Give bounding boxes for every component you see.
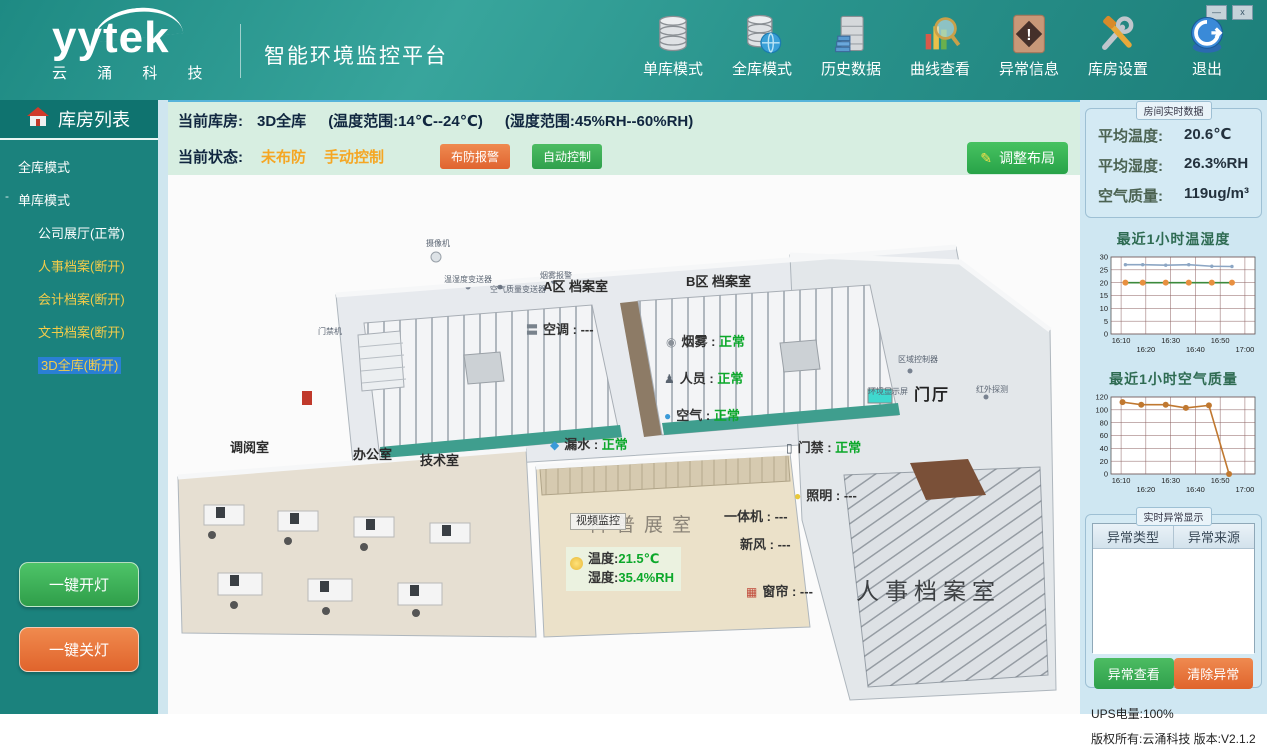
toolbar-all-mode[interactable]: 全库模式	[724, 12, 800, 79]
tree-item-3d-all[interactable]: 3D全库(断开)	[0, 348, 158, 381]
view-alerts-button[interactable]: 异常查看	[1094, 658, 1174, 689]
svg-text:!: !	[1026, 27, 1031, 44]
toolbar-label: 库房设置	[1080, 58, 1156, 79]
alert-type-column-header: 异常类型	[1093, 524, 1174, 548]
tech-room-label: 技术室	[420, 454, 459, 469]
curve-magnifier-icon	[902, 12, 978, 56]
statusbar-line2: 当前状态: 未布防 手动控制 布防报警 自动控制	[168, 138, 1080, 174]
svg-text:20: 20	[1099, 457, 1107, 466]
svg-text:16:40: 16:40	[1185, 485, 1204, 494]
svg-text:120: 120	[1095, 393, 1108, 402]
alerts-table-header: 异常类型 异常来源	[1093, 524, 1254, 549]
ac-sensor: 〓空调 : ---	[526, 323, 594, 338]
light-sensor: ●照明 : ---	[794, 489, 857, 504]
temp-humidity-chart-title: 最近1小时温湿度	[1085, 229, 1262, 249]
svg-text:15: 15	[1099, 291, 1107, 300]
zonecontroller-device-label: 区域控制器	[898, 355, 938, 364]
air-quality-chart-block: 最近1小时空气质量 02040608010012016:1016:2016:30…	[1085, 369, 1262, 498]
svg-text:16:30: 16:30	[1161, 336, 1180, 345]
video-monitor-chip[interactable]: 视频监控	[570, 513, 626, 530]
collapse-expander-icon[interactable]: -	[5, 189, 9, 203]
svg-text:17:00: 17:00	[1235, 485, 1254, 494]
toolbar-label: 历史数据	[813, 58, 889, 79]
tree-item-all-mode[interactable]: 全库模式	[0, 150, 158, 183]
infrared-device-label: 红外探测	[976, 385, 1008, 394]
avg-temp-row: 平均温度: 20.6℃	[1086, 125, 1261, 146]
svg-text:20: 20	[1099, 278, 1107, 287]
current-state-label: 当前状态:	[178, 146, 243, 167]
toolbar-alert-info[interactable]: ! 异常信息	[991, 12, 1067, 79]
area-a-label: A区 档案室	[543, 280, 608, 295]
air-quality-chart: 02040608010012016:1016:2016:3016:4016:50…	[1087, 392, 1261, 498]
tree-item-personnel-archive[interactable]: 人事档案(断开)	[0, 249, 158, 282]
scene-overlay: 温度:21.5℃ 湿度:35.4%RH A区 档案室B区 档案室门厅调阅室办公室…	[168, 175, 1080, 714]
svg-text:0: 0	[1103, 330, 1107, 339]
alerts-table-body[interactable]	[1093, 549, 1254, 654]
temphum-device-label: 温湿度变送器	[444, 275, 492, 284]
alerts-buttons: 异常查看 清除异常	[1092, 653, 1255, 689]
svg-text:16:40: 16:40	[1185, 345, 1204, 354]
all-lights-on-button[interactable]: 一键开灯	[19, 562, 139, 607]
toolbar-curve-view[interactable]: 曲线查看	[902, 12, 978, 79]
toolbar-label: 单库模式	[635, 58, 711, 79]
app-title: 智能环境监控平台	[264, 40, 448, 70]
envdisplay-device-label: 环境显示屏	[868, 387, 908, 396]
toolbar-label: 退出	[1169, 58, 1245, 79]
warning-diamond-icon: !	[991, 12, 1067, 56]
warehouse-tree: 全库模式 -单库模式 公司展厅(正常) 人事档案(断开) 会计档案(断开) 文书…	[0, 140, 158, 381]
temp-range-value: (温度范围:14℃--24℃)	[328, 110, 483, 131]
air-sensor: ●空气 : 正常	[664, 409, 740, 424]
single-database-icon	[635, 12, 711, 56]
area-b-label: B区 档案室	[686, 275, 751, 290]
sidebar-title: 库房列表	[58, 106, 130, 132]
sidebar: 库房列表 全库模式 -单库模式 公司展厅(正常) 人事档案(断开) 会计档案(断…	[0, 100, 158, 714]
hall-label: 门厅	[914, 387, 950, 405]
svg-text:16:10: 16:10	[1111, 476, 1130, 485]
exit-icon	[1169, 12, 1245, 56]
bulb-icon	[570, 557, 583, 570]
toolbar: 单库模式 全库模式 历史数据 曲线查看 ! 异常信息 库房设置 退出	[635, 12, 1245, 79]
smokealarm-device-label: 烟雾报警	[540, 271, 572, 280]
personnel-archive-label: 人事档案室	[856, 579, 1001, 605]
air-quality-chart-title: 最近1小时空气质量	[1085, 369, 1262, 389]
toolbar-single-mode[interactable]: 单库模式	[635, 12, 711, 79]
sidebar-header: 库房列表	[0, 100, 158, 140]
header-divider	[240, 24, 241, 78]
svg-text:25: 25	[1099, 265, 1107, 274]
toolbar-label: 全库模式	[724, 58, 800, 79]
allinone-sensor: 一体机 : ---	[724, 510, 788, 525]
warehouse-3d-view[interactable]: 温度:21.5℃ 湿度:35.4%RH A区 档案室B区 档案室门厅调阅室办公室…	[168, 175, 1080, 714]
humidity-range-value: (湿度范围:45%RH--60%RH)	[505, 110, 693, 131]
main-content: 当前库房: 3D全库 (温度范围:14℃--24℃) (湿度范围:45%RH--…	[168, 100, 1080, 714]
copyright-version: 版权所有:云涌科技 版本:V2.1.2	[1091, 727, 1262, 752]
toolbar-history[interactable]: 历史数据	[813, 12, 889, 79]
auto-control-button[interactable]: 自动控制	[532, 144, 602, 169]
pencil-icon: ✎	[980, 150, 992, 167]
toolbar-exit[interactable]: 退出	[1169, 12, 1245, 79]
toolbar-label: 异常信息	[991, 58, 1067, 79]
control-mode-value: 手动控制	[324, 146, 384, 167]
logo-subtext: 云 涌 科 技	[52, 62, 216, 83]
air-quality-row: 空气质量: 119ug/m³	[1086, 185, 1261, 206]
exhibit-temp-humidity-badge: 温度:21.5℃ 湿度:35.4%RH	[566, 547, 681, 591]
avg-humidity-row: 平均湿度: 26.3%RH	[1086, 155, 1261, 176]
ups-status: UPS电量:100%	[1091, 702, 1262, 727]
realtime-alerts-title: 实时异常显示	[1136, 507, 1212, 526]
svg-text:100: 100	[1095, 405, 1108, 414]
app-header: yytek 云 涌 科 技 智能环境监控平台 — x 单库模式 全库模式 历史数…	[0, 0, 1267, 100]
doorunit-device-label: 门禁机	[318, 327, 342, 336]
svg-text:60: 60	[1099, 431, 1107, 440]
panel-footer: UPS电量:100% 版权所有:云涌科技 版本:V2.1.2	[1085, 702, 1262, 752]
svg-text:40: 40	[1099, 444, 1107, 453]
tree-item-document-archive[interactable]: 文书档案(断开)	[0, 315, 158, 348]
tree-item-single-mode[interactable]: -单库模式	[0, 183, 158, 216]
right-panel: 房间实时数据 平均温度: 20.6℃ 平均湿度: 26.3%RH 空气质量: 1…	[1080, 100, 1267, 714]
temp-humidity-chart-block: 最近1小时温湿度 05101520253016:1016:2016:3016:4…	[1085, 229, 1262, 358]
all-database-globe-icon	[724, 12, 800, 56]
clear-alerts-button[interactable]: 清除异常	[1174, 658, 1254, 689]
realtime-data-title: 房间实时数据	[1136, 101, 1212, 120]
alerts-table: 异常类型 异常来源	[1092, 523, 1255, 653]
camera-device-label: 摄像机	[426, 239, 450, 248]
office-label: 办公室	[353, 448, 392, 463]
svg-text:80: 80	[1099, 418, 1107, 427]
svg-text:5: 5	[1103, 317, 1107, 326]
temp-humidity-chart: 05101520253016:1016:2016:3016:4016:5017:…	[1087, 252, 1261, 358]
tools-icon	[1080, 12, 1156, 56]
adjust-layout-label: 调整布局	[999, 148, 1055, 168]
arm-state-value: 未布防	[261, 146, 306, 167]
freshair-sensor: 新风 : ---	[740, 538, 791, 553]
leak-sensor: ◆漏水 : 正常	[550, 438, 628, 453]
realtime-alerts-box: 实时异常显示 异常类型 异常来源 异常查看 清除异常	[1085, 514, 1262, 688]
current-warehouse-label: 当前库房:	[178, 110, 243, 131]
curtain-sensor: ▦窗帘 : ---	[746, 585, 813, 600]
person-sensor: ♟人员 : 正常	[664, 372, 743, 387]
house-icon	[26, 106, 50, 132]
svg-text:16:30: 16:30	[1161, 476, 1180, 485]
statusbar: 当前库房: 3D全库 (温度范围:14℃--24℃) (湿度范围:45%RH--…	[168, 100, 1080, 175]
current-warehouse-value: 3D全库	[257, 110, 306, 131]
svg-text:16:50: 16:50	[1210, 476, 1229, 485]
sidebar-buttons: 一键开灯 一键关灯	[0, 562, 158, 672]
alert-source-column-header: 异常来源	[1174, 524, 1254, 548]
airquality-device-label: 空气质量变送器	[490, 285, 546, 294]
svg-text:10: 10	[1099, 304, 1107, 313]
sidebar-splitter[interactable]	[158, 100, 168, 714]
history-cabinet-icon	[813, 12, 889, 56]
toolbar-settings[interactable]: 库房设置	[1080, 12, 1156, 79]
logo: yytek 云 涌 科 技	[52, 16, 216, 83]
smoke-sensor: ◉烟雾 : 正常	[666, 335, 745, 350]
svg-text:17:00: 17:00	[1235, 345, 1254, 354]
toolbar-label: 曲线查看	[902, 58, 978, 79]
statusbar-line1: 当前库房: 3D全库 (温度范围:14℃--24℃) (湿度范围:45%RH--…	[168, 102, 1080, 138]
tree-item-accounting-archive[interactable]: 会计档案(断开)	[0, 282, 158, 315]
door-sensor: ▯门禁 : 正常	[786, 441, 861, 456]
svg-text:16:20: 16:20	[1136, 485, 1155, 494]
tree-item-company-hall[interactable]: 公司展厅(正常)	[0, 216, 158, 249]
reading-room-label: 调阅室	[230, 441, 269, 456]
adjust-layout-button[interactable]: ✎ 调整布局	[967, 142, 1068, 174]
svg-text:30: 30	[1099, 253, 1107, 262]
svg-text:16:50: 16:50	[1210, 336, 1229, 345]
svg-text:16:10: 16:10	[1111, 336, 1130, 345]
all-lights-off-button[interactable]: 一键关灯	[19, 627, 139, 672]
svg-text:0: 0	[1103, 470, 1107, 479]
realtime-data-box: 房间实时数据 平均温度: 20.6℃ 平均湿度: 26.3%RH 空气质量: 1…	[1085, 108, 1262, 218]
svg-text:16:20: 16:20	[1136, 345, 1155, 354]
arm-alarm-button[interactable]: 布防报警	[440, 144, 510, 169]
